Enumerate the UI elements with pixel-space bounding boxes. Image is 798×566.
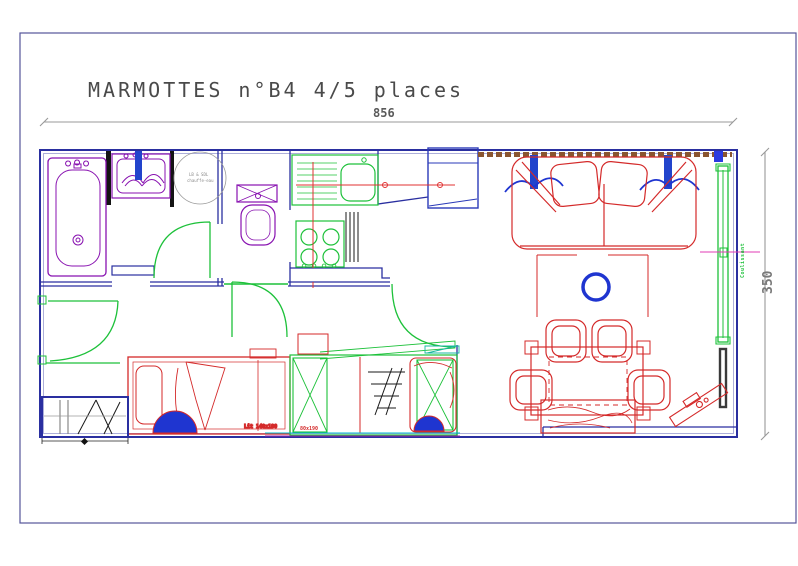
heater-hatch <box>346 212 358 262</box>
tall-unit <box>428 148 478 208</box>
dimension-top: 856 <box>40 106 737 126</box>
outer-wall-inner-line <box>44 154 734 434</box>
floor-plan-page: MARMOTTES n°B4 4/5 places 856 350 LB & S… <box>0 0 798 566</box>
bench-wood-grain <box>548 407 632 428</box>
sink-tap-icon <box>362 158 366 162</box>
plan-title: MARMOTTES n°B4 4/5 places <box>88 78 464 102</box>
water-heater-label-1: LB & SDL <box>189 172 209 177</box>
shelf-knob-icon <box>703 397 709 403</box>
page-frame <box>20 33 796 523</box>
bathtub-drain-dot <box>76 238 80 242</box>
steps-box <box>42 397 128 437</box>
bay-window-label: Coulissant <box>740 243 746 278</box>
diagonal-shelf <box>666 379 727 427</box>
sofa-cushion <box>598 161 648 208</box>
dining-chair-inner <box>552 326 580 356</box>
bed-frame <box>128 357 290 434</box>
door-corridor-left <box>46 301 120 363</box>
floor-plan-drawing: MARMOTTES n°B4 4/5 places 856 350 LB & S… <box>0 0 798 566</box>
hob-burner <box>323 229 339 245</box>
steps-rails <box>60 400 68 434</box>
bathtub-drain <box>73 235 83 245</box>
curtain-left <box>505 155 563 192</box>
hob-burner <box>301 229 317 245</box>
dimension-right-value: 350 <box>761 270 776 294</box>
bathtub-inner <box>56 170 100 266</box>
dimension-top-value: 856 <box>373 106 395 120</box>
overhead-shelf <box>320 341 455 359</box>
side-ledge <box>425 346 459 353</box>
bed-lamp-icon <box>153 411 197 433</box>
hob-burner <box>301 249 317 265</box>
bed-pillow <box>136 366 162 424</box>
steps-hatch <box>78 400 120 434</box>
toilet-bowl-inner <box>246 210 270 240</box>
hob-outline <box>296 221 344 267</box>
dimension-right: 350 <box>761 148 776 440</box>
interior-walls <box>40 151 737 437</box>
small-desk <box>298 334 328 354</box>
washbasin <box>112 151 170 198</box>
shelf-bracket <box>683 393 700 408</box>
bathtub <box>48 158 106 276</box>
bath-mat <box>112 266 154 275</box>
sofa-cushion <box>550 161 600 208</box>
corner-bracket-icon <box>714 151 723 162</box>
hob <box>296 221 344 268</box>
wardrobe-left-cross <box>293 358 327 432</box>
door-bedroom1 <box>232 282 287 337</box>
hob-burner <box>323 249 339 265</box>
table-leaf-dashed <box>549 357 627 405</box>
solid-panel <box>720 349 726 407</box>
bed-double: Lit 140x190 <box>128 349 290 434</box>
dining-chair-inner <box>634 376 664 404</box>
ladder <box>368 368 405 415</box>
washbasin-detail <box>122 175 164 187</box>
bay-window: Coulissant <box>700 164 760 407</box>
entry-steps <box>42 397 128 445</box>
water-heater-label-2: chauffe-eau <box>187 178 214 183</box>
sink-counter <box>292 155 378 205</box>
rug <box>537 255 648 317</box>
tall-unit-box <box>428 148 478 208</box>
dining-chairs <box>510 320 670 410</box>
door-bedroom2 <box>392 284 455 347</box>
sink-bowl <box>341 164 375 201</box>
bathtub-taps-icon <box>66 160 89 168</box>
washbasin-tap-icon <box>135 151 142 180</box>
kitchen-sink <box>292 155 378 205</box>
bed-double-label: Lit 140x190 <box>244 424 277 430</box>
steps-dim-marker <box>81 438 88 445</box>
sink-drainboard <box>297 163 337 199</box>
bed-single-label: 80x190 <box>300 426 318 432</box>
bed-single-lamp-icon <box>414 416 444 431</box>
pedestal-table <box>583 274 609 300</box>
door-bathroom <box>154 222 210 278</box>
dining-chair-inner <box>598 326 626 356</box>
toilet <box>237 185 277 245</box>
